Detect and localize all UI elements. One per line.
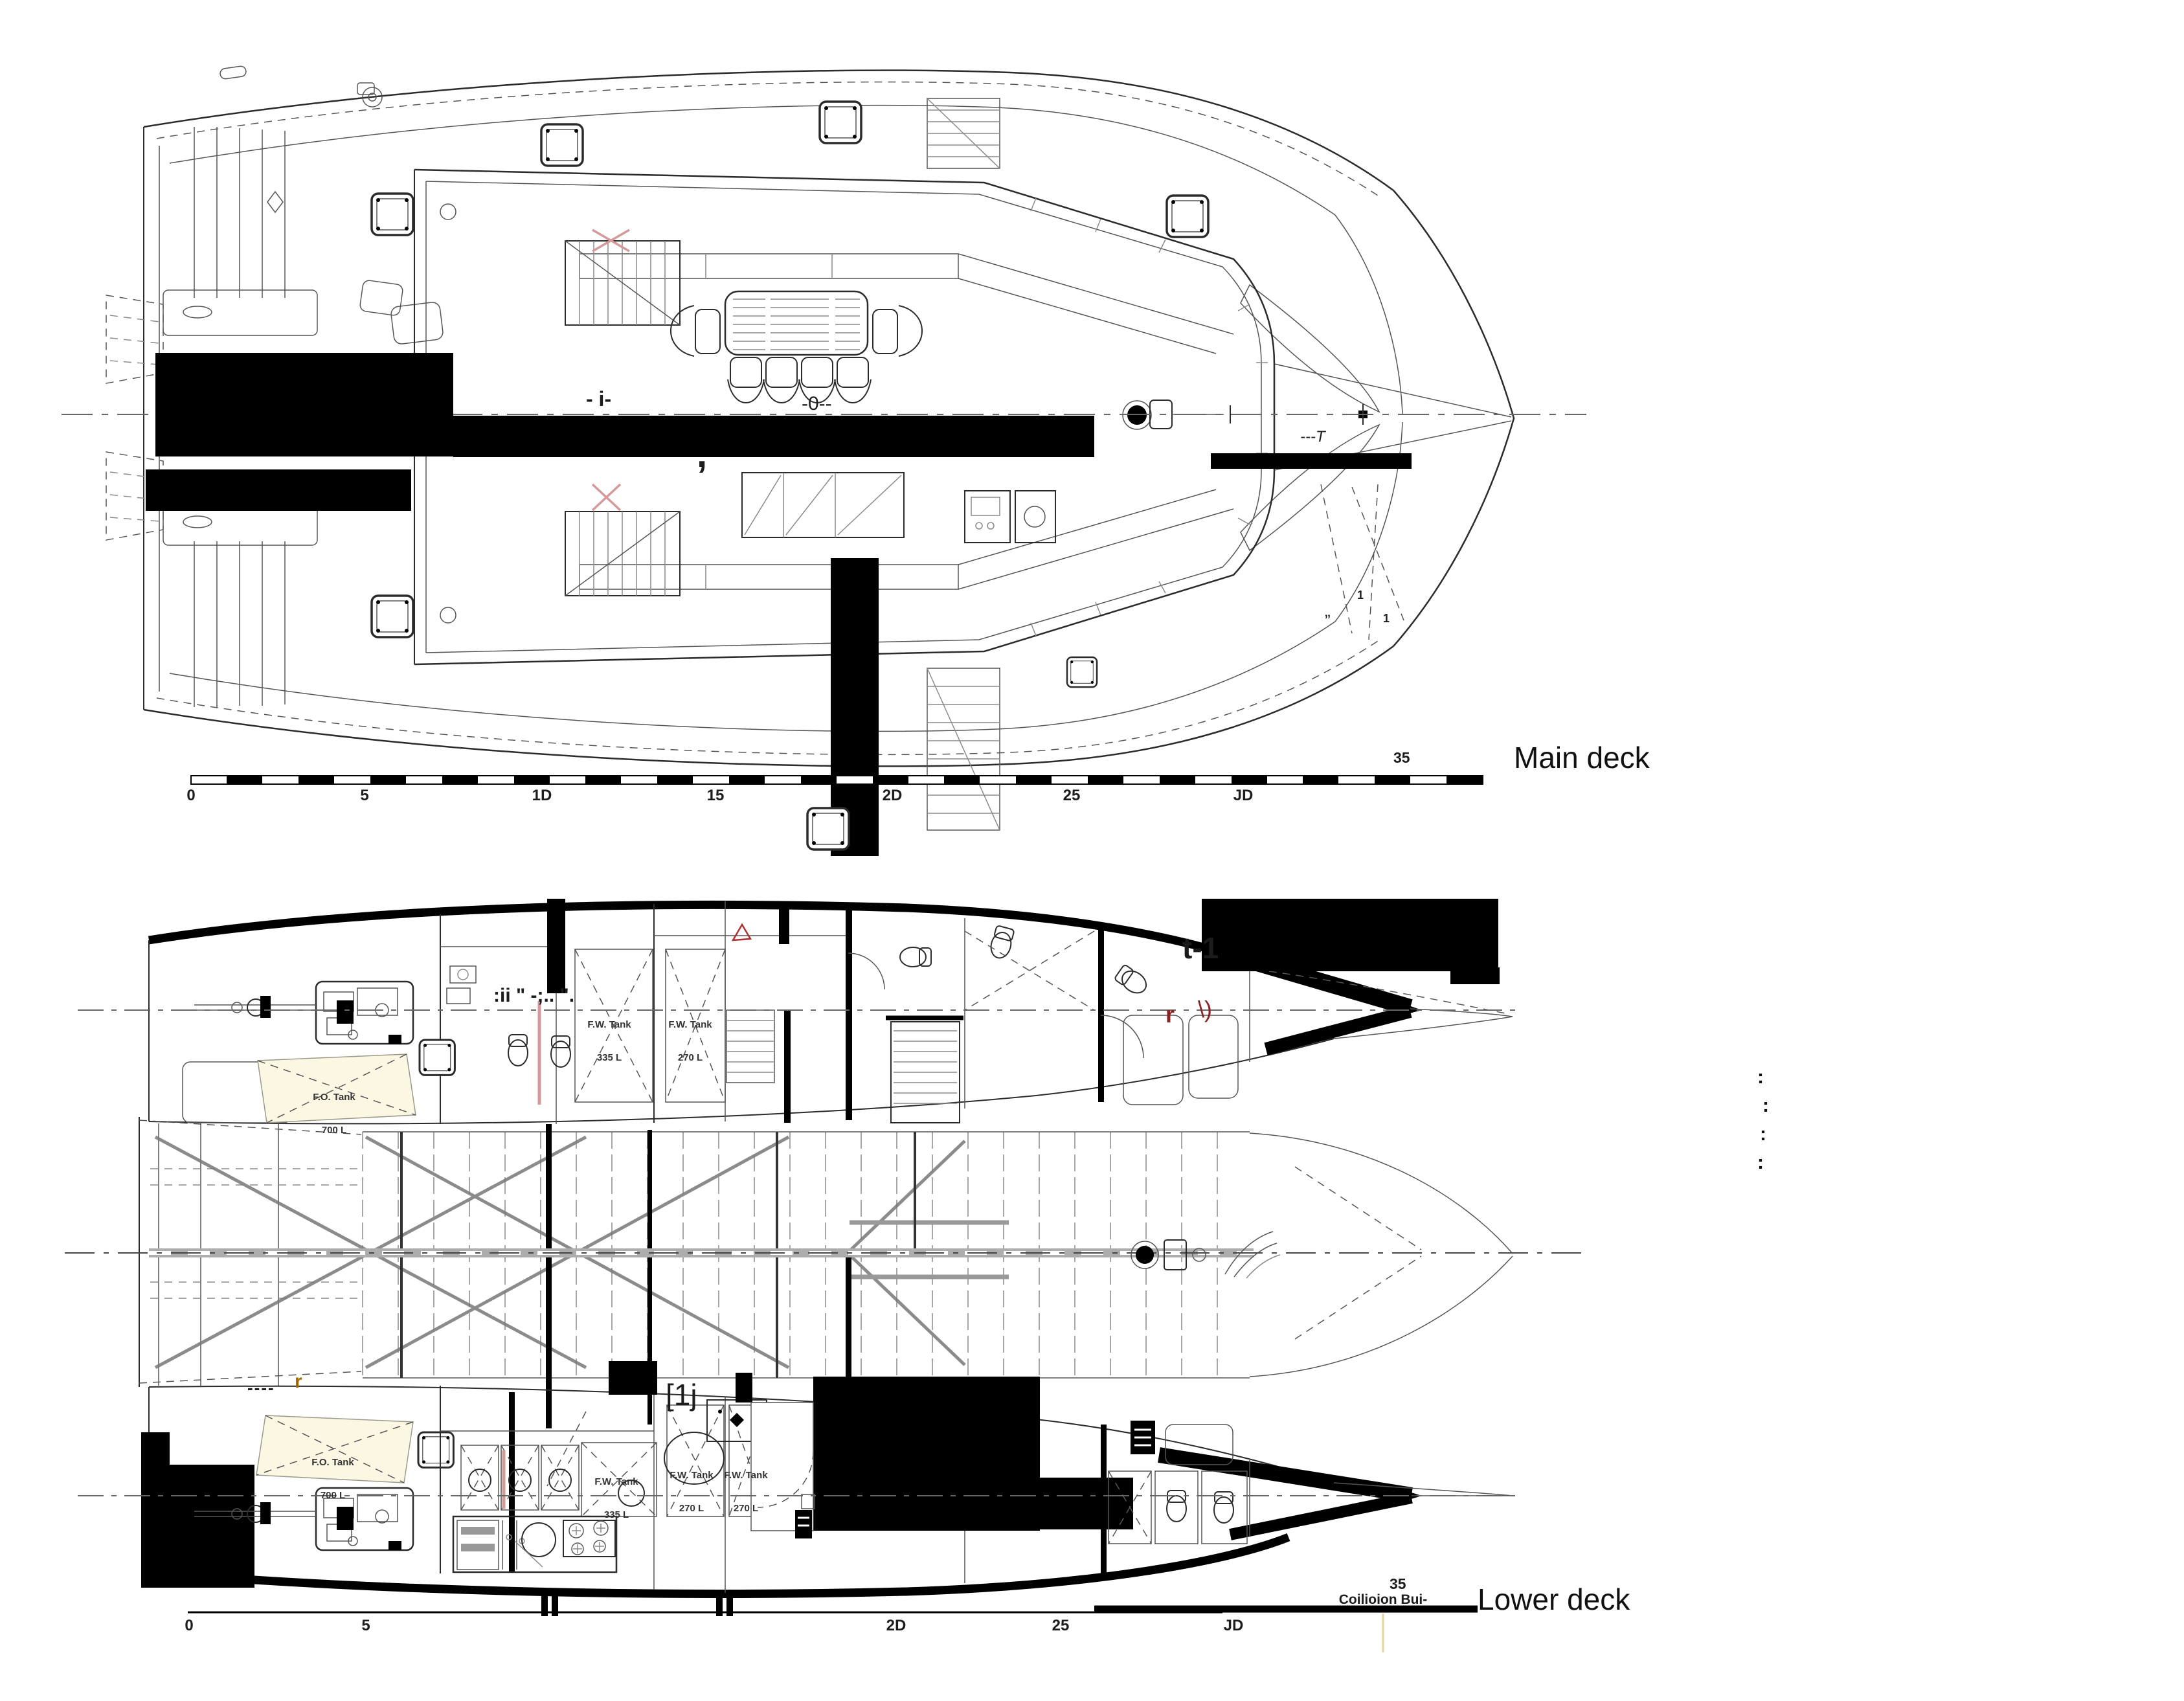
lower-ruler-label: 2D [880,1617,912,1634]
annotation-fragment: -0-- [802,394,832,414]
main-ruler-label: 0 [175,787,207,804]
lower-ruler-label: 5 [350,1617,382,1634]
lower-deck-title: Lower deck [1478,1584,1630,1615]
annotation-fragment: 1 [1357,589,1364,602]
tank-label-fw-starboard-1: F.W. Tank 335 L [578,1454,655,1531]
tank-label-fw-port-2: F.W. Tank 270 L [651,997,729,1074]
main-ruler-label: 25 [1055,787,1088,804]
main-ruler-label: 2D [876,787,908,804]
annotation-fragment: t-1 [1182,932,1219,963]
lower-ruler-label: 0 [173,1617,205,1634]
lower-ruler-label: JD [1217,1617,1250,1634]
annotation-fragment: „ [1325,602,1331,620]
lower-deck-plan [65,899,1586,1652]
main-scale-bar [191,776,1483,784]
port-hull [78,899,1515,1124]
annotation-fragment: :ii " -;.. ". [493,986,574,1006]
main-scale-end-label: 35 [1393,750,1410,765]
lower-ruler-label: 25 [1044,1617,1077,1634]
margin-dot-mark: : [1757,1067,1764,1088]
main-deck-title: Main deck [1514,742,1650,773]
main-ruler-label: 15 [699,787,732,804]
stairs [565,98,1000,830]
starboard-hull [78,1361,1515,1594]
main-ruler-label: 5 [348,787,381,804]
annotation-fragment: - i- [586,389,611,411]
tank-label-fw-starboard-3: F.W. Tank 270 L [707,1448,785,1525]
annotation-fragment-red: r [1165,1002,1175,1027]
main-ruler-label: JD [1227,787,1259,804]
annotation-fragment-orange: r [295,1371,302,1392]
annotation-fragment: [1j [666,1379,697,1410]
tank-label-fw-port-1: F.W. Tank 335 L [570,997,648,1074]
annotation-fragment: , [697,435,707,475]
annotation-fragment: ---T [1300,429,1325,445]
collision-bulkhead-label: Coilioion Bui- [1318,1593,1448,1607]
lower-scale-end-label: 35 [1390,1576,1406,1592]
tank-label-fo-starboard: F.O. Tank 700 L [294,1435,372,1512]
foredeck-anchor-winch [1123,400,1404,640]
margin-dot-mark: : [1762,1096,1769,1116]
blueprint-canvas: Main deck 35 0 5 1D 15 2D 25 JD - i- -0-… [0,0,2184,1701]
dining-area [671,291,922,403]
galley [592,230,1055,543]
margin-dot-mark: : [1757,1153,1764,1173]
tank-label-fo-port: F.O. Tank 700 L [295,1070,373,1147]
annotation-fragment: ---- [247,1379,275,1397]
annotation-fragment: 1 [1383,613,1390,625]
margin-dot-mark: : [1760,1124,1766,1145]
main-deck-plan [62,65,1586,856]
annotation-fragment-red: \) [1198,997,1212,1022]
main-ruler-label: 1D [526,787,558,804]
